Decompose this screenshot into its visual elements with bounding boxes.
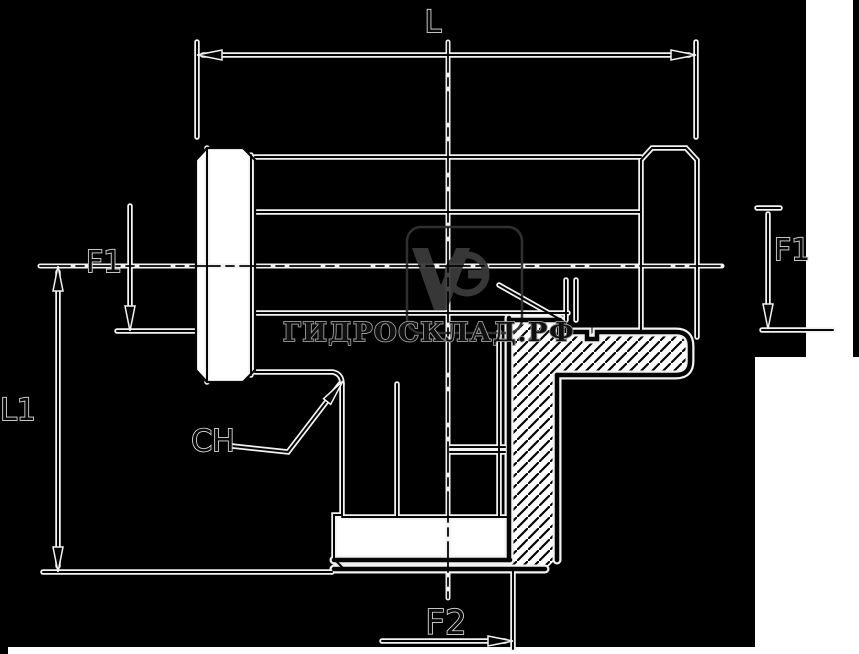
watermark-text: ГИДРОСКЛАД.РФ [283, 318, 575, 348]
white-band-right [806, 0, 853, 358]
hatch-right-arm [557, 333, 689, 375]
hatch-bottom-column [510, 320, 557, 568]
label-F1-right: F1 [774, 233, 810, 268]
white-strip-bottom [8, 647, 859, 654]
tee-fitting-drawing: ГИДРОСКЛАД.РФ L F1 F1 L1 CH F2 [0, 0, 859, 654]
label-length-L: L [425, 5, 442, 40]
label-CH: CH [191, 424, 235, 459]
label-L1: L1 [0, 393, 36, 428]
vg-logo-bar-icon [468, 270, 489, 279]
white-region-bottom-right [755, 357, 859, 654]
technical-drawing-canvas: ГИДРОСКЛАД.РФ L F1 F1 L1 CH F2 [0, 0, 859, 654]
label-F1-left: F1 [86, 245, 122, 280]
label-F2: F2 [425, 603, 466, 643]
